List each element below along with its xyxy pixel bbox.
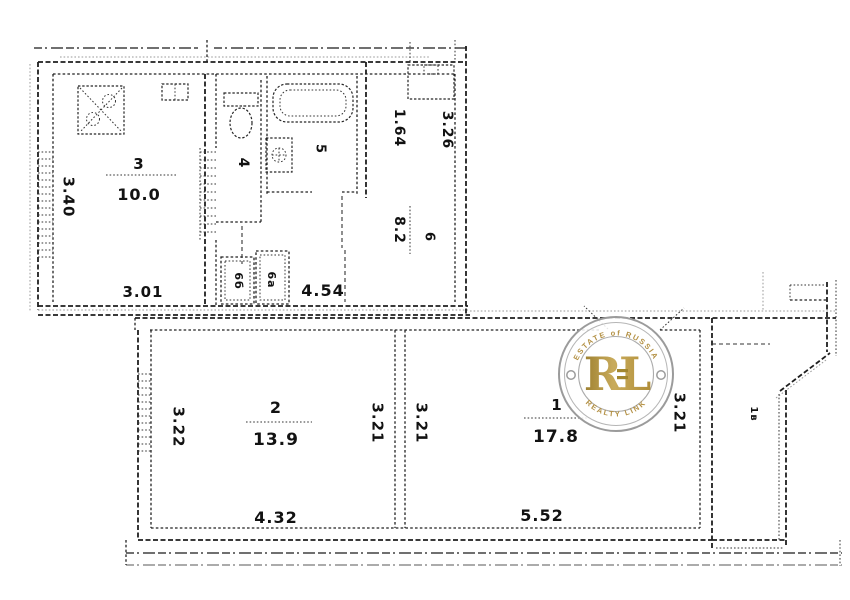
balcony-walls: [712, 272, 836, 548]
kitchen-doorway-hatch: [200, 148, 216, 240]
dim-room2-right: 3.21: [369, 402, 387, 443]
room1-number: 1: [551, 396, 562, 414]
watermark-monogram: RL: [584, 347, 651, 401]
bottom-exterior-wall: [126, 540, 842, 566]
lower-section-walls: [135, 306, 836, 548]
balcony-angled-corner: [780, 353, 830, 391]
room3-area: 10.0: [117, 185, 160, 204]
dim-kitchen-bottom: 3.01: [122, 283, 163, 301]
dim-closet-row: 4.54: [301, 281, 344, 300]
closet-right-label: 6а: [265, 271, 278, 288]
room2-number: 2: [270, 398, 282, 417]
watermark-right-rivet: [657, 371, 665, 379]
dim-room1-left: 3.21: [413, 402, 431, 443]
dim-room2-left: 3.22: [170, 406, 188, 447]
watermark-badge: ESTATE of RUSSIA RL REALTY LINK: [559, 317, 673, 431]
dim-room1-bottom: 5.52: [520, 506, 563, 525]
sink-icon: [266, 138, 292, 172]
closet-left-label: 6б: [232, 272, 245, 289]
dim-room1-right: 3.21: [671, 392, 689, 433]
room3-number: 3: [133, 155, 144, 173]
dim-kitchen-width: 3.40: [60, 176, 78, 217]
monogram-bar-detail: [617, 369, 628, 372]
stove-icon: [78, 86, 124, 134]
floor-plan-page: 3 10.0 3.40 3.01 4 5 1.64 3.26 8.2 6 6б …: [0, 0, 850, 600]
dim-room2-bottom: 4.32: [254, 508, 297, 527]
balcony-label: 1в: [748, 406, 759, 421]
upper-section-walls: [30, 40, 470, 315]
room2-window-hatch: [138, 374, 151, 451]
room2-area: 13.9: [253, 430, 299, 450]
room4-number: 4: [235, 158, 251, 169]
room-divider-wall: [395, 330, 405, 528]
dim-upper-right: 3.26: [439, 111, 455, 150]
room1-area: 17.8: [533, 427, 579, 447]
toilet-icon: [224, 93, 258, 106]
shaft-box: [408, 65, 454, 99]
kitchen-window-hatch: [38, 152, 53, 257]
room6-number: 6: [422, 232, 437, 242]
floor-plan-drawing: 3 10.0 3.40 3.01 4 5 1.64 3.26 8.2 6 6б …: [0, 0, 850, 600]
watermark-left-rivet: [567, 371, 575, 379]
room6-area: 8.2: [391, 216, 407, 244]
room5-number: 5: [313, 144, 328, 154]
dim-hall-top: 1.64: [391, 109, 407, 148]
